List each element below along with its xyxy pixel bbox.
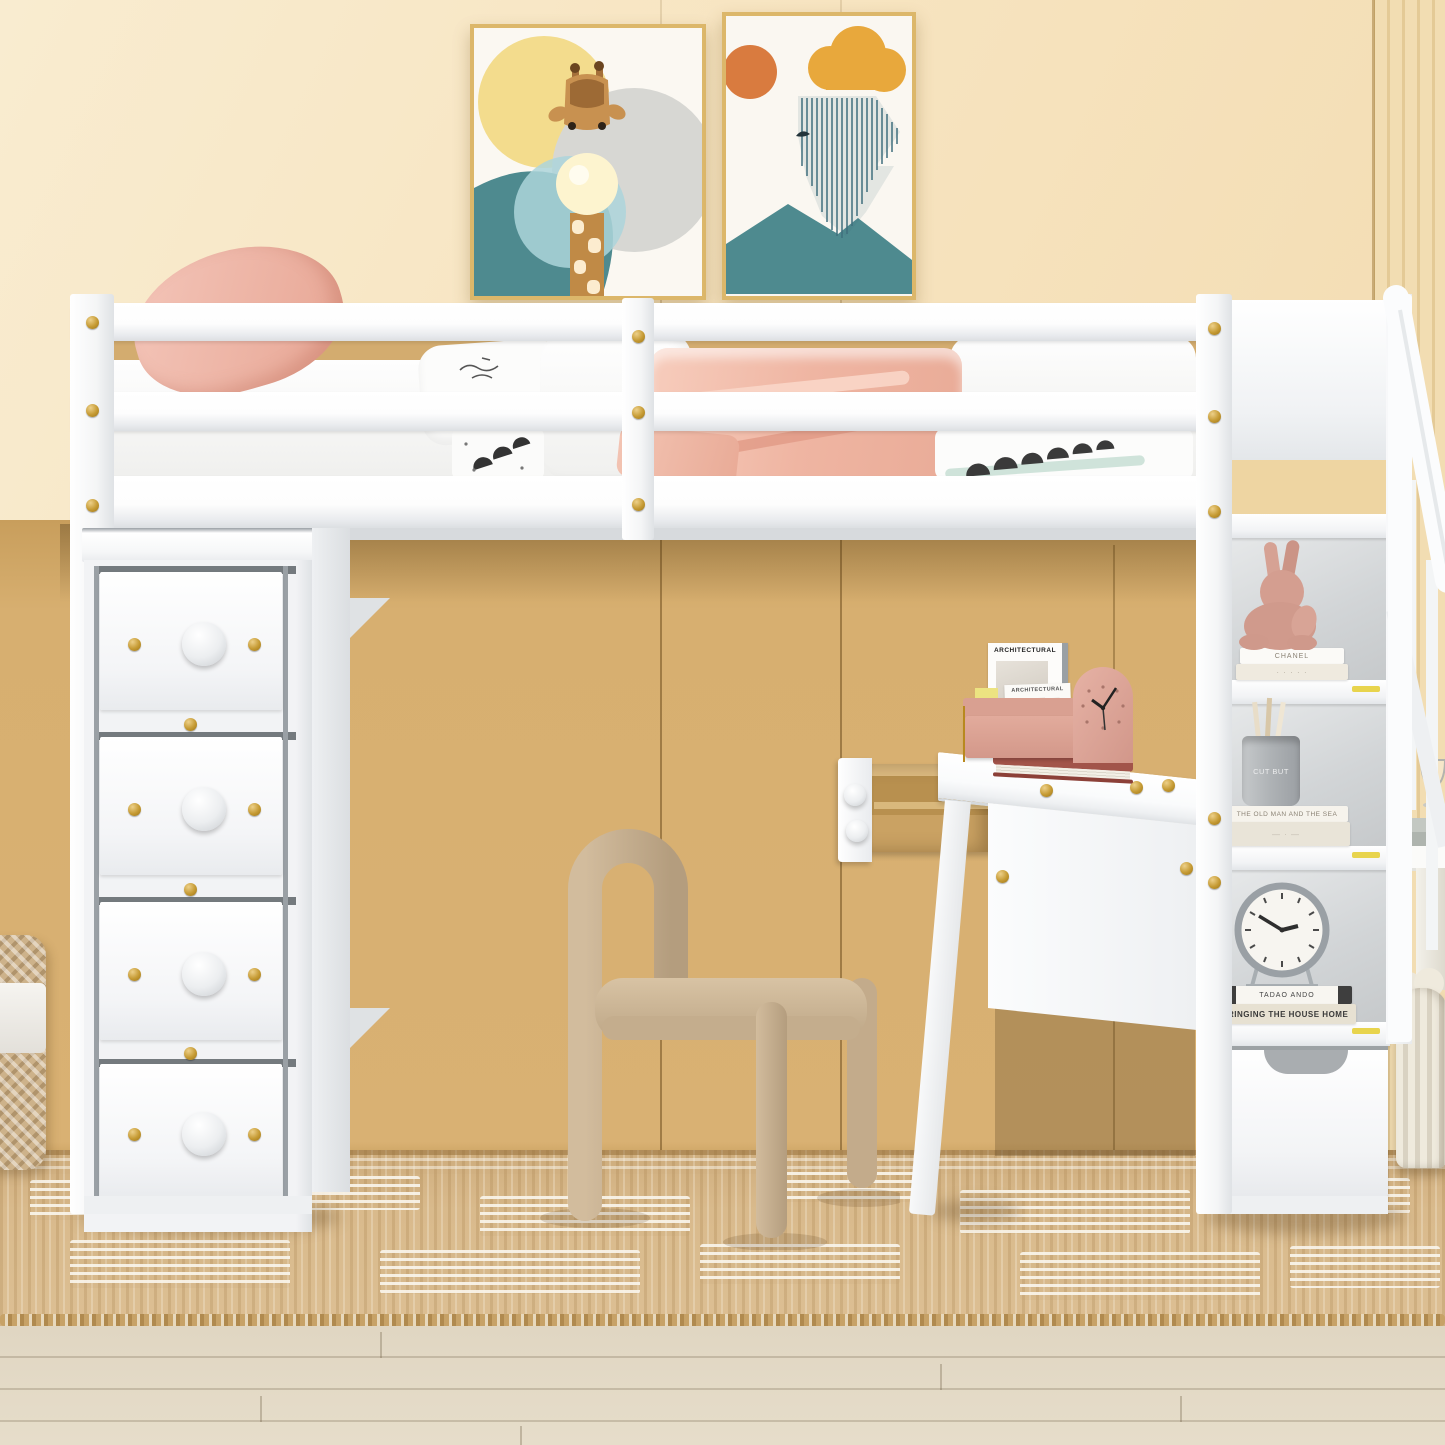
screw [1208,322,1221,335]
book-spine: — · — [1222,822,1350,846]
art-print-giraffe [470,24,706,300]
floor-seam [380,1332,382,1358]
rug-stitch-patch [1290,1246,1440,1288]
dresser-gap-v [94,566,99,1200]
jar-label: CUT BUT [1253,767,1289,776]
screw [1208,505,1221,518]
book-spine: CHANEL [1240,648,1344,664]
table-clock [1234,882,1330,992]
dresser-plinth [84,1196,312,1214]
book-spine: · · · · · [1236,664,1348,680]
concrete-jar: CUT BUT [1242,736,1300,806]
screw [128,803,141,816]
drawer-knob [182,622,226,666]
basket-cloth [0,983,46,1053]
drawer-knob [844,784,866,806]
dresser [82,526,352,1226]
book-spine: THE OLD MAN AND THE SEA [1226,806,1348,822]
bunny-plush [1238,540,1334,650]
stair-railing [1380,280,1445,1080]
floor-planks [0,1326,1445,1445]
rug-stitch-patch [1020,1252,1260,1300]
magazine-title: ARCHITECTURAL [988,647,1062,654]
shelf-board [1220,514,1390,538]
screw [86,404,99,417]
screw [86,316,99,329]
screw [248,803,261,816]
screw [1208,876,1221,889]
screw [248,968,261,981]
drawer-knob [846,820,868,842]
drawer-front-panel [838,758,872,862]
chair-seat-edge [602,1016,860,1040]
drawer-front [100,902,282,1040]
duvet-print-marks [452,352,522,386]
screw [632,498,645,511]
rug-stitch-patch [700,1244,900,1284]
screw [128,1128,141,1141]
chair-leg-front [756,1002,787,1238]
shelf-board [1220,680,1390,704]
sticker-tag [1352,852,1380,858]
pink-arch-clock [1072,666,1134,764]
sticker-tag [1352,686,1380,692]
support-bracket [350,1008,390,1048]
dresser-top [82,528,314,562]
screw [1162,779,1175,792]
support-bracket [350,598,390,638]
screw [632,330,645,343]
tower-back-panel [1232,300,1393,460]
drawer-knob [182,1112,226,1156]
rug-stitch-patch [380,1250,640,1294]
dresser-side-frame [296,560,312,1232]
screw [128,968,141,981]
dresser-gap-v [283,566,288,1200]
screw [632,406,645,419]
dino-pillow-left [452,428,544,480]
bed-post-middle [622,298,654,540]
rug-fringe [0,1314,1445,1326]
tower-wall-gap [1232,460,1390,514]
art-print-landscape [722,12,916,300]
giraffe-artwork [474,28,702,296]
shelf-board [1220,1022,1390,1046]
dino-spikes [935,428,1193,480]
book-spine-label: BRINGING THE HOUSE HOME [1222,1010,1349,1019]
sticker-tag [1352,1028,1380,1034]
tower-base [1222,1196,1388,1214]
floor-seam [940,1364,942,1390]
drawer-front [100,737,282,875]
screw [86,499,99,512]
drawer-front [100,1064,282,1198]
dino-pillow-right [935,428,1193,480]
wicker-basket [0,935,46,1170]
screw [248,638,261,651]
shelf-board [1220,846,1390,870]
screw [184,883,197,896]
screw [1208,410,1221,423]
screw [1180,862,1193,875]
floor-seam [520,1426,522,1445]
screw [184,1047,197,1060]
book-spine-label: CHANEL [1275,653,1309,660]
screw [184,718,197,731]
screw [996,870,1009,883]
organizer-wire [963,706,965,762]
tower-front-post [1196,294,1232,1214]
room-scene: ARCHITECTURAL ARCHITECTURAL [0,0,1445,1445]
screw [248,1128,261,1141]
book-spine-label: TADAO ANDO [1259,992,1314,999]
screw [1208,812,1221,825]
dino-spikes [452,428,544,480]
bed-support-post [312,528,350,1192]
screw [128,638,141,651]
floor-seam [260,1396,262,1422]
drawer-notch-handle [1264,1050,1348,1074]
drawer-knob [182,952,226,996]
desk [930,745,1200,1215]
screw [1040,784,1053,797]
stair-drawer [1222,1046,1388,1196]
card-title: ARCHITECTURAL [1004,686,1070,694]
book-spine: BRINGING THE HOUSE HOME [1214,1004,1356,1024]
drawer-front [100,572,282,710]
floor-seam [1180,1396,1182,1422]
landscape-artwork [726,16,912,296]
desk-apron [988,803,1198,1030]
rug-stitch-patch [70,1240,290,1288]
drawer-knob [182,787,226,831]
book-spine-label: THE OLD MAN AND THE SEA [1237,811,1338,818]
wood-floor [0,1326,1445,1445]
book-spine: TADAO ANDO [1222,986,1352,1004]
